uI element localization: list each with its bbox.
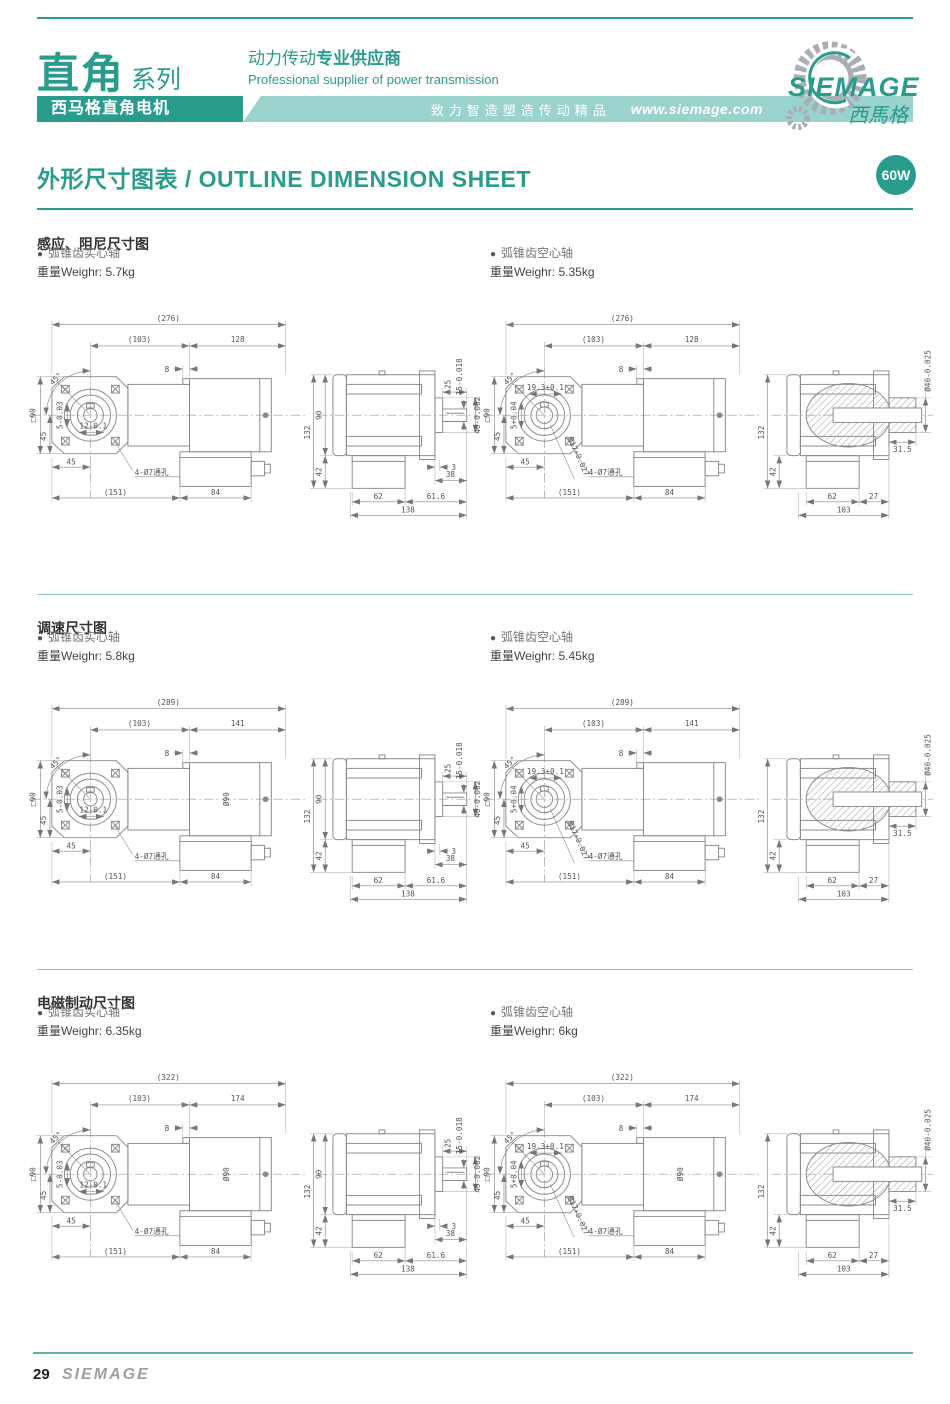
dim-b616: 61.6 [427,1251,446,1260]
side-view: 132 90 42 25 15-0.018 40-0.062 3 38 62 6… [303,742,482,903]
dim-gearhead-length: (103) [582,719,605,728]
solid-shaft-drawing: (276) (103) 128 8 □90 45° 45 45 12-0.1 5… [23,292,485,523]
dim-flange-square: □90 [483,792,492,806]
dimension-drawing: (276) (103) 128 8 □90 45° 45 45 19.3+0.1… [477,292,939,528]
bullet-icon: ● [37,1008,43,1019]
side-view: 132 42 Ø40-0.025 31.5 62 27 103 [757,1109,933,1278]
side-outline [787,755,922,872]
dim-total-length: (322) [157,1073,180,1082]
dim-b62: 62 [374,1251,383,1260]
series-brand: 直角系列 [37,40,181,101]
dim-side-box: 42 [768,851,777,860]
hollow-shaft-drawing: (276) (103) 128 8 □90 45° 45 45 19.3+0.1… [477,292,939,523]
dim-hub-length: 31.5 [893,445,912,454]
dim-b62: 62 [828,876,837,885]
dim-key-height: 12-0.1 [79,806,107,815]
dim-terminal-box: 84 [665,488,675,497]
dim-b103: 103 [837,1264,851,1273]
dim-b27: 27 [869,876,879,885]
dim-b62: 62 [828,492,837,501]
dim-side-body: 90 [314,410,323,420]
dim-left-45: 45 [520,841,530,850]
dim-gearhead-length: (103) [582,1094,605,1103]
dim-motor-length: 128 [231,335,245,344]
dim-left-45: 45 [520,457,530,466]
dim-b616: 61.6 [427,492,446,501]
company-logo: SIEMAGE 西馬格 [786,30,918,130]
dim-motor-length: 174 [231,1094,245,1103]
dim-b27: 27 [869,492,879,501]
side-view: 132 90 42 25 15-0.018 40-0.062 3 38 62 6… [303,1117,482,1278]
dim-b62: 62 [374,876,383,885]
dimension-drawing: (322) (103) 174 8 □90 45° 45 45 12-0.1 5… [23,1051,485,1287]
dim-key-width: 5+0.04 [509,785,518,813]
shaft-type-label: 弧锥齿空心轴 [501,630,573,644]
dim-key-height: 12-0.1 [79,422,107,431]
dim-base-length: (151) [104,872,127,881]
dim-shaft-length: 25 [443,1138,452,1148]
logo-cn: 西馬格 [848,105,910,127]
dim-side-body: 90 [314,1169,323,1179]
dim-mounting-holes: 4-Ø7通孔 [135,1226,169,1236]
dim-hub-length: 31.5 [893,1204,912,1213]
dim-base-length: (151) [558,872,581,881]
dim-bore-diameter: Ø17+0.027 [566,1195,591,1237]
dim-offset: 8 [165,365,170,374]
dim-offset: 8 [619,365,624,374]
dim-mounting-holes: 4-Ø7通孔 [589,851,623,861]
dim-terminal-box: 84 [211,872,221,881]
dim-total-length: (276) [611,314,634,323]
dim-angle: 45° [48,1130,64,1146]
dim-left-45: 45 [520,1216,530,1225]
slogan-en: Professional supplier of power transmiss… [248,71,499,89]
front-view: (289) (103) 141 8 □90 45° 45 45 12-0.1 5… [29,698,478,886]
dim-side-height: 132 [303,810,312,824]
slogan-cn-regular: 动力传动 [248,49,316,68]
footer-brand: SIEMAGE [62,1366,150,1384]
dim-b138: 138 [401,889,415,898]
section-divider [37,969,913,970]
dim-bore-keyway-height: 19.3+0.1 [527,767,564,776]
side-outline [787,371,922,488]
weight-label: 重量Weighr: 6kg [490,1022,578,1039]
datasheet-page: 直角系列 西马格直角电机 动力传动专业供应商 Professional supp… [0,0,950,1404]
power-badge: 60W [876,155,916,195]
weight-label: 重量Weighr: 5.45kg [490,647,595,664]
series-bar: 西马格直角电机 [37,96,243,122]
solid-shaft-drawing: (322) (103) 174 8 □90 45° 45 45 12-0.1 5… [23,1051,485,1282]
dim-side-height: 132 [757,810,766,824]
dim-flange-square: □90 [483,1167,492,1181]
hollow-shaft-drawing: (322) (103) 174 8 □90 45° 45 45 19.3+0.1… [477,1051,939,1282]
dim-angle: 45° [48,755,64,771]
dim-side-height: 132 [303,426,312,440]
dim-key-width: 5-0.03 [55,1160,64,1188]
dim-body-diameter: Ø90 [676,1167,685,1181]
dim-offset: 8 [619,749,624,758]
dim-motor-length: 141 [231,719,245,728]
slogan-cn-bold: 专业供应商 [316,49,401,68]
dim-shaft-length: 25 [443,379,452,389]
shaft-type-label: 弧锥齿空心轴 [501,246,573,260]
dim-side-height: 132 [303,1185,312,1199]
dim-offset: 8 [165,1124,170,1133]
dim-flange-square: □90 [29,408,38,422]
dim-total-length: (289) [157,698,180,707]
dim-key-width: 5-0.03 [55,401,64,429]
strip-motto: 致力智造塑造传动精品 [431,100,611,119]
dim-motor-length: 141 [685,719,699,728]
dim-side-box: 42 [768,1226,777,1235]
dim-angle: 45° [502,755,518,771]
weight-label: 重量Weighr: 5.35kg [490,263,595,280]
dim-b27: 27 [869,1251,879,1260]
dim-gearhead-length: (103) [128,335,151,344]
dim-angle: 45° [502,371,518,387]
hollow-shaft-drawing: (289) (103) 141 8 □90 45° 45 45 19.3+0.1… [477,676,939,907]
dim-flange-square: □90 [29,792,38,806]
dim-mounting-holes: 4-Ø7通孔 [135,851,169,861]
dim-side-box: 42 [314,1226,323,1235]
shaft-type-label: 弧锥齿实心轴 [48,1005,120,1019]
dim-base-length: (151) [558,1247,581,1256]
dim-base-length: (151) [104,1247,127,1256]
dim-center-45: 45 [493,1190,502,1200]
dim-center-45: 45 [39,431,48,441]
dim-key-height: 12-0.1 [79,1181,107,1190]
dim-hub-diameter: Ø40-0.025 [923,1109,932,1151]
dim-angle: 45° [48,371,64,387]
dim-left-45: 45 [66,457,76,466]
dim-gearhead-length: (103) [128,719,151,728]
dim-mounting-holes: 4-Ø7通孔 [589,1226,623,1236]
slogan: 动力传动专业供应商 Professional supplier of power… [248,48,499,88]
title-rule [37,208,913,210]
top-rule [37,17,913,19]
dim-left-45: 45 [66,841,76,850]
dim-side-box: 42 [314,467,323,476]
dim-terminal-box: 84 [211,1247,221,1256]
dim-bore-keyway-height: 19.3+0.1 [527,1142,564,1151]
dim-key-width: 5+0.04 [509,401,518,429]
weight-label: 重量Weighr: 6.35kg [37,1022,142,1039]
dim-rear: 38 [446,1229,456,1238]
dimension-drawing: (289) (103) 141 8 □90 45° 45 45 19.3+0.1… [477,676,939,912]
weight-label: 重量Weighr: 5.8kg [37,647,135,664]
dim-key-width: 5+0.04 [509,1160,518,1188]
dim-terminal-box: 84 [665,872,675,881]
section-divider [37,594,913,595]
side-view: 132 90 42 25 15-0.018 40-0.062 3 38 62 6… [303,358,482,519]
weight-label: 重量Weighr: 5.7kg [37,263,135,280]
dim-motor-length: 128 [685,335,699,344]
dim-shaft-diameter: 15-0.018 [455,358,464,395]
dim-shaft-diameter: 15-0.018 [455,1117,464,1154]
dim-angle: 45° [502,1130,518,1146]
dimension-drawing: (322) (103) 174 8 □90 45° 45 45 19.3+0.1… [477,1051,939,1287]
dimension-drawing: (276) (103) 128 8 □90 45° 45 45 12-0.1 5… [23,292,485,528]
dim-flange-square: □90 [483,408,492,422]
dim-side-height: 132 [757,426,766,440]
shaft-type-label: 弧锥齿空心轴 [501,1005,573,1019]
dim-body-diameter: Ø90 [222,792,231,806]
logo-name: SIEMAGE [788,72,920,102]
bullet-icon: ● [37,249,43,260]
series-suffix: 系列 [131,66,181,94]
dim-total-length: (289) [611,698,634,707]
dim-side-box: 42 [314,851,323,860]
dim-motor-length: 174 [685,1094,699,1103]
series-title: 直角 [37,50,125,97]
side-outline [787,1130,922,1247]
dim-side-body: 90 [314,794,323,804]
dim-center-45: 45 [39,815,48,825]
bullet-icon: ● [490,249,496,260]
dim-center-45: 45 [493,431,502,441]
dim-rear: 38 [446,854,456,863]
dim-gearhead-length: (103) [128,1094,151,1103]
website-text: www.siemage.com [631,101,763,117]
dim-gearhead-length: (103) [582,335,605,344]
dim-bore-diameter: Ø17+0.027 [566,436,591,478]
dim-shaft-diameter: 15-0.018 [455,742,464,779]
dim-rear: 38 [446,470,456,479]
dim-offset: 8 [165,749,170,758]
dim-b138: 138 [401,505,415,514]
dim-shaft-length: 25 [443,763,452,773]
dim-hub-diameter: Ø40-0.025 [923,734,932,776]
dim-b138: 138 [401,1264,415,1273]
bullet-icon: ● [490,633,496,644]
dim-b616: 61.6 [427,876,446,885]
dim-body-diameter: Ø90 [222,1167,231,1181]
page-number: 29 [33,1366,50,1383]
dim-center-45: 45 [39,1190,48,1200]
dim-side-box: 42 [768,467,777,476]
front-view: (322) (103) 174 8 □90 45° 45 45 12-0.1 5… [29,1073,478,1261]
dim-hub-diameter: Ø40-0.025 [923,350,932,392]
dim-total-length: (322) [611,1073,634,1082]
dim-terminal-box: 84 [211,488,221,497]
dim-hub-length: 31.5 [893,829,912,838]
solid-shaft-drawing: (289) (103) 141 8 □90 45° 45 45 12-0.1 5… [23,676,485,907]
dim-key-width: 5-0.03 [55,785,64,813]
dim-side-height: 132 [757,1185,766,1199]
side-view: 132 42 Ø40-0.025 31.5 62 27 103 [757,350,933,519]
dimension-drawing: (289) (103) 141 8 □90 45° 45 45 12-0.1 5… [23,676,485,912]
side-view: 132 42 Ø40-0.025 31.5 62 27 103 [757,734,933,903]
dim-b62: 62 [828,1251,837,1260]
dim-b103: 103 [837,505,851,514]
dim-b62: 62 [374,492,383,501]
shaft-type-label: 弧锥齿实心轴 [48,630,120,644]
dim-bore-diameter: Ø17+0.027 [566,820,591,862]
dim-left-45: 45 [66,1216,76,1225]
dim-terminal-box: 84 [665,1247,675,1256]
shaft-type-label: 弧锥齿实心轴 [48,246,120,260]
dim-mounting-holes: 4-Ø7通孔 [135,467,169,477]
dim-base-length: (151) [104,488,127,497]
dim-offset: 8 [619,1124,624,1133]
dim-flange-square: □90 [29,1167,38,1181]
page-title: 外形尺寸图表 / OUTLINE DIMENSION SHEET [37,160,531,194]
dim-base-length: (151) [558,488,581,497]
dim-b103: 103 [837,889,851,898]
bullet-icon: ● [37,633,43,644]
front-view: (276) (103) 128 8 □90 45° 45 45 12-0.1 5… [29,314,478,502]
dim-bore-keyway-height: 19.3+0.1 [527,383,564,392]
footer-rule [33,1352,913,1354]
dim-center-45: 45 [493,815,502,825]
dim-mounting-holes: 4-Ø7通孔 [589,467,623,477]
bullet-icon: ● [490,1008,496,1019]
small-gear-icon [789,109,807,127]
dim-total-length: (276) [157,314,180,323]
